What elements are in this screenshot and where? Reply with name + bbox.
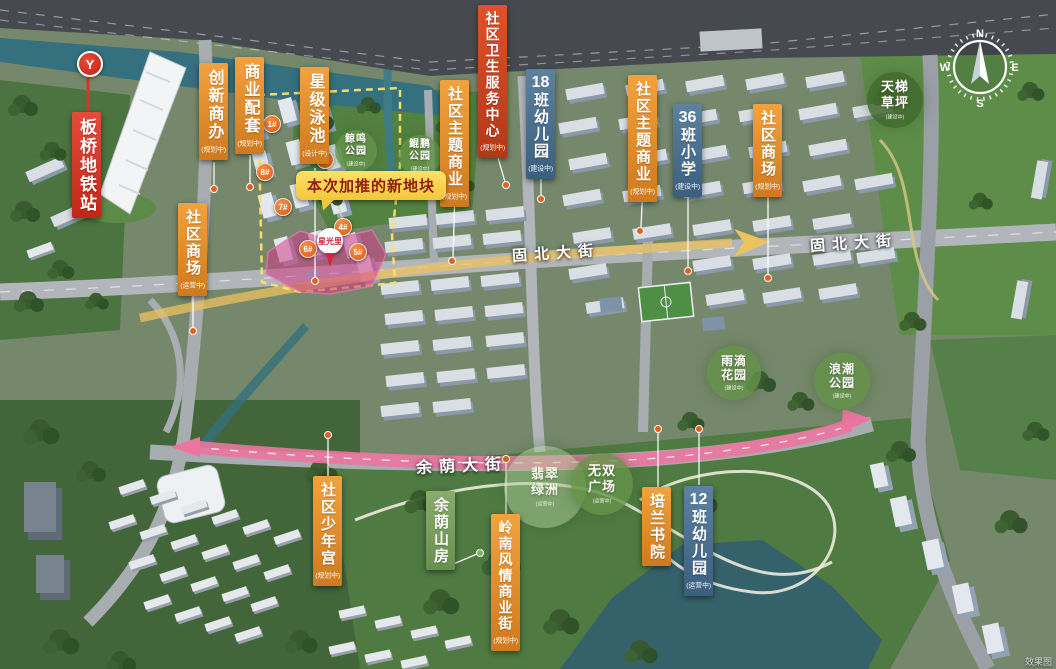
building-badge-6: 6# [299,240,317,258]
banner-lingnan-commercial-street: 岭南风情商业街(规划中) [491,514,520,651]
banner-youth-palace: 社区少年宫(规划中) [313,476,342,586]
compass-rose: N E S W [937,24,1023,110]
banner-primary-school-36: 36班小学(建设中) [673,104,702,197]
banner-innovation-office: 创新商办(规划中) [199,63,228,160]
banner-commercial-support: 商业配套(规划中) [235,57,264,154]
building-badge-7: 7# [274,198,292,216]
compass-n: N [976,28,984,40]
park-wushuang-plaza: 无双广场(运营中) [571,453,633,515]
metro-logo-icon: Y [77,51,103,77]
promo-callout: 本次加推的新地块 [296,171,446,200]
building-badge-1: 1# [263,115,281,133]
banner-peilan-academy: 培兰书院 [642,487,671,566]
banner-theme-commercial-east: 社区主题商业(规划中) [628,75,657,202]
park-jingming: 鲸鸣公园(建设中) [335,130,377,172]
compass-s: S [976,98,983,110]
banner-star-pool: 星级泳池(设计中) [300,67,329,164]
banner-kindergarten-18: 18班幼儿园(建设中) [526,69,555,179]
banner-community-mall-west: 社区商场(运营中) [178,203,207,296]
gold-route [140,229,770,318]
banner-yuyin-garden: 余荫山房 [426,491,455,570]
park-wave-park: 浪潮公园(建设中) [814,353,870,409]
project-pin: 星光里 [317,228,343,254]
banner-community-mall-east: 社区商场(规划中) [753,104,782,197]
watermark-label: 效果图 [1025,655,1052,668]
park-raindrop-garden: 雨滴花园(建设中) [707,346,761,400]
banner-kindergarten-12: 12班幼儿园(运营中) [684,486,713,596]
compass-e: E [1011,62,1018,74]
street-label-yuyin: 余荫大街 [416,450,509,478]
park-sky-lawn: 天梯草坪(建设中) [867,72,923,128]
masterplan-map: Y 板桥地铁站 创新商办(规划中) 商业配套(规划中) 星级泳池(设计中) 社区… [0,0,1056,669]
compass-w: W [940,62,951,74]
building-badge-8: 8# [256,163,274,181]
banner-metro-station: 板桥地铁站 [72,112,101,218]
banner-health-service-center: 社区卫生服务中心(规划中) [478,5,507,158]
building-badge-5: 5# [349,243,367,261]
